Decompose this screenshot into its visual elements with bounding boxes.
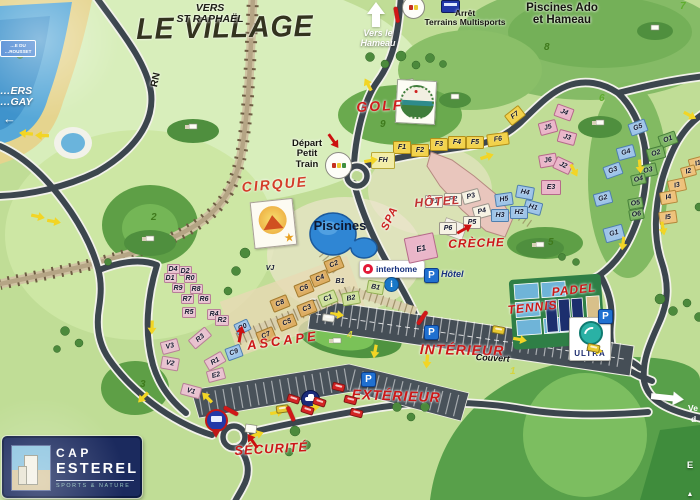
building-label: D1 — [166, 275, 175, 282]
building-h5: H5 — [494, 191, 514, 206]
building-label: G4 — [621, 147, 632, 156]
building-label: H3 — [496, 212, 505, 219]
car-icon — [322, 313, 336, 323]
sign-vers-agay: …ERS …GAY — [0, 86, 42, 109]
building-label: G3 — [607, 165, 618, 175]
golf-hole-2: 2 — [151, 212, 157, 223]
building-o4: O4 — [630, 172, 647, 186]
edge-text-fragment: d — [691, 415, 696, 424]
building-label: I1 — [694, 159, 700, 167]
golf-hole-9: 9 — [380, 119, 386, 130]
golf-hole-8: 8 — [544, 42, 550, 53]
building-label: R2 — [218, 317, 227, 324]
sign-vers-st-raphael: VERS ST RAPHAËL — [128, 3, 292, 26]
building-label: R3 — [194, 332, 205, 343]
parking-icon: P — [361, 372, 376, 387]
building-label: C2 — [329, 259, 340, 269]
building-r6: R6 — [198, 294, 211, 304]
building-label: B2 — [346, 294, 356, 302]
building-label: I2 — [684, 167, 691, 175]
building-label: R9 — [174, 285, 183, 292]
building-h4: H4 — [515, 184, 535, 200]
poi-label-couvert: Couvert — [475, 352, 509, 364]
logo-photo — [11, 445, 51, 491]
building-label: C4 — [315, 273, 326, 283]
golf-hole-3: 3 — [140, 379, 146, 390]
building-r2: R2 — [215, 315, 229, 326]
building-label: V3 — [165, 342, 175, 351]
building-label: H2 — [515, 209, 524, 216]
building-r7: R7 — [181, 294, 194, 304]
building-label: F6 — [493, 135, 502, 143]
building-f3: F3 — [430, 138, 448, 151]
parking-icon: P — [424, 268, 439, 283]
bus-stop-pin-icon — [204, 409, 226, 439]
poi-label-extrieur: EXTÉRIEUR — [351, 386, 441, 405]
building-label: V1 — [186, 387, 196, 396]
building-label: R0 — [186, 275, 195, 282]
building-label: O5 — [630, 199, 640, 208]
building-label: E2 — [211, 371, 221, 380]
circus-poster-icon: ★ — [250, 198, 298, 249]
building-r0: R0 — [184, 273, 197, 283]
building-r8: R8 — [190, 284, 203, 294]
building-f5: F5 — [466, 136, 484, 149]
left-arrow-icon: ← — [3, 112, 16, 126]
building-label: E3 — [547, 184, 556, 191]
terrain-map — [0, 0, 700, 500]
golf-hole-5: 5 — [548, 237, 554, 248]
building-label: D4 — [169, 266, 178, 273]
sign-depart-petit-train: Départ Petit Train — [286, 139, 328, 170]
building-label: O2 — [651, 148, 662, 157]
building-label: P3 — [466, 192, 476, 201]
building-label: F1 — [398, 144, 406, 151]
building-label: C5 — [282, 317, 293, 327]
building-p6: P6 — [439, 222, 457, 235]
building-f1: F1 — [393, 141, 411, 154]
building-label: C6 — [299, 283, 310, 293]
building-label: I5 — [665, 213, 672, 221]
building-r9: R9 — [172, 283, 185, 293]
resort-map: LE VILLAGE VERS ST RAPHAËL Piscines Ado … — [0, 0, 700, 500]
cap-esterel-logo: CAP ESTEREL SPORTS & NATURE — [2, 436, 142, 498]
compass-fragment: E ▲ ◆ ▼ O — [680, 443, 700, 500]
building-label: E1 — [415, 243, 426, 254]
parking-icon: P — [424, 325, 439, 340]
building-label: G2 — [598, 193, 609, 202]
building-i4: I4 — [659, 189, 678, 205]
pond — [61, 133, 85, 153]
building-label: VJ — [266, 265, 275, 272]
interhome-logo: interhome — [359, 260, 425, 278]
building-label: F3 — [435, 141, 443, 148]
edge-text-fragment: Ve — [688, 404, 698, 413]
building-e3: E3 — [541, 180, 561, 195]
building-f2: F2 — [411, 144, 429, 157]
building-b1: B1 — [366, 279, 385, 295]
golf-hole-7: 7 — [680, 1, 686, 12]
building-label: O6 — [631, 210, 641, 219]
hotel-parking-label: Hôtel — [441, 270, 464, 280]
building-label: F7 — [510, 110, 521, 121]
building-label: P5 — [468, 219, 477, 226]
piscines-label: Piscines — [304, 219, 376, 233]
poi-label-golf: GOLF — [356, 97, 404, 115]
building-label: R8 — [192, 286, 201, 293]
building-v2: V2 — [160, 355, 180, 371]
petit-train-icon — [325, 152, 352, 179]
interhome-icon — [363, 264, 373, 274]
star-icon: ★ — [283, 230, 295, 245]
building-h2: H2 — [510, 206, 528, 219]
building-label: C9 — [229, 347, 240, 357]
golf-hole-1: 1 — [510, 366, 516, 377]
logo-tagline: SPORTS & NATURE — [56, 483, 138, 489]
building-label: C3 — [302, 303, 313, 313]
sign-arret-multisports: Arrêt Terrains Multisports — [422, 9, 508, 27]
building-label: I3 — [673, 181, 680, 189]
building-label: FH — [378, 157, 387, 164]
building-label: J6 — [544, 156, 553, 164]
sign-vers-le-hameau: Vers le Hameau — [352, 29, 404, 48]
up-arrow-icon — [366, 2, 386, 30]
building-label: P6 — [444, 225, 453, 232]
building-label: J2 — [558, 160, 568, 170]
building-label: P4 — [477, 207, 487, 216]
logo-line2: ESTEREL — [56, 461, 138, 477]
building-label: G1 — [609, 228, 620, 237]
building-label: B1 — [336, 278, 345, 285]
building-label: G5 — [632, 122, 643, 132]
sign-rousset: …E DU …ROUSSET — [0, 40, 36, 57]
building-label: F2 — [416, 147, 424, 154]
building-h3: H3 — [491, 209, 509, 222]
golf-hole-4: 4 — [347, 330, 353, 341]
building-label: I4 — [665, 193, 672, 201]
building-label: B1 — [370, 283, 380, 291]
building-label: F5 — [471, 139, 479, 146]
building-label: C8 — [275, 298, 286, 308]
building-b2: B2 — [341, 290, 361, 306]
building-label: J5 — [543, 123, 552, 132]
building-f4: F4 — [448, 136, 466, 149]
tennis-ball-icon — [579, 321, 603, 345]
parking-icon: P — [598, 309, 613, 324]
golf-hole-6: 6 — [599, 93, 605, 104]
building-label: H5 — [499, 195, 509, 203]
building-label: R6 — [200, 296, 209, 303]
building-o6: O6 — [628, 207, 645, 220]
building-d1: D1 — [164, 273, 177, 283]
building-label: J4 — [559, 107, 569, 116]
building-label: V2 — [165, 359, 175, 367]
building-label: R1 — [209, 356, 220, 367]
info-icon: i — [384, 277, 399, 292]
building-label: F4 — [453, 139, 461, 146]
building-label: H4 — [520, 188, 530, 196]
building-label: R7 — [183, 296, 192, 303]
building-label: C1 — [323, 293, 334, 303]
building-vj: VJ — [262, 263, 278, 274]
building-label: O4 — [633, 175, 644, 184]
building-label: O1 — [662, 134, 673, 144]
sign-piscines-ado: Piscines Ado et Hameau — [498, 2, 626, 27]
building-b1: B1 — [332, 276, 348, 287]
building-label: R5 — [185, 309, 194, 316]
building-r5: R5 — [182, 307, 196, 318]
building-label: H1 — [528, 202, 538, 211]
building-label: J3 — [562, 133, 571, 142]
logo-line1: CAP — [56, 446, 138, 460]
building-f6: F6 — [486, 131, 510, 147]
poi-label-crche: CRÈCHE — [448, 235, 505, 251]
